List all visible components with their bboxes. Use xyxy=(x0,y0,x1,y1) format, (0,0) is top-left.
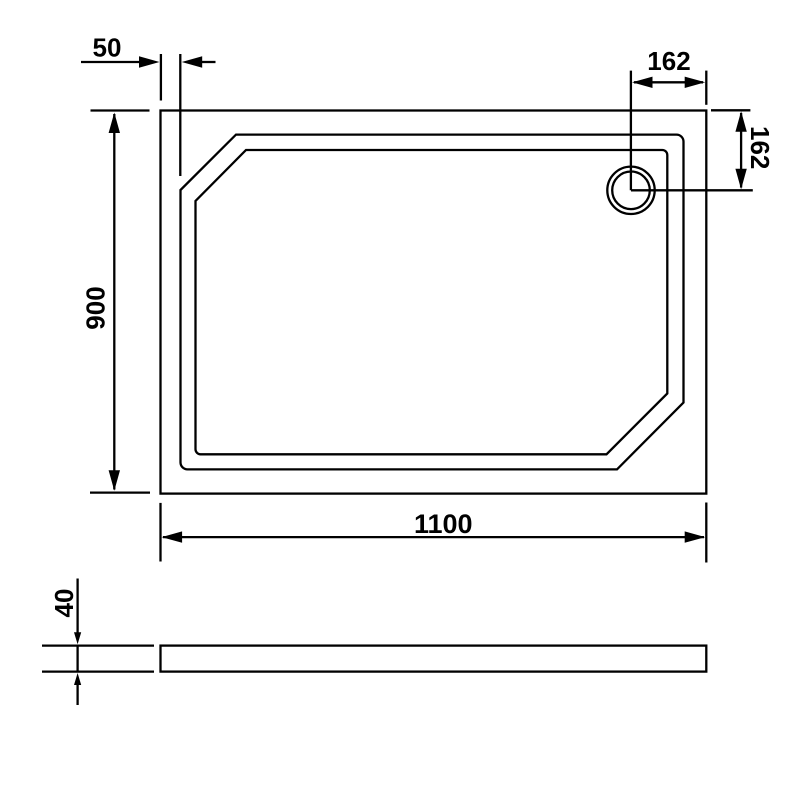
svg-text:162: 162 xyxy=(647,46,690,76)
svg-text:162: 162 xyxy=(745,126,775,169)
svg-text:50: 50 xyxy=(93,33,122,63)
svg-text:40: 40 xyxy=(49,589,79,618)
svg-text:1100: 1100 xyxy=(414,509,473,539)
svg-text:900: 900 xyxy=(81,286,111,329)
